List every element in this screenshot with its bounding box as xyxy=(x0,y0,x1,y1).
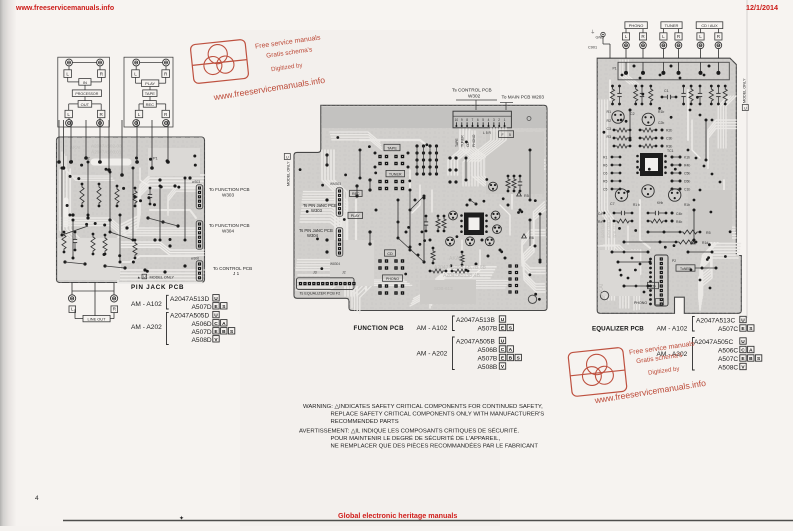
svg-text:SDB-615: SDB-615 xyxy=(613,223,617,238)
svg-text:L: L xyxy=(66,72,69,77)
svg-text:A508B: A508B xyxy=(478,364,498,371)
svg-text:J2: J2 xyxy=(342,271,346,275)
svg-text:PHONO: PHONO xyxy=(472,134,476,147)
svg-text:7: 7 xyxy=(472,118,474,122)
svg-text:C5b: C5b xyxy=(684,172,690,176)
svg-text:PLAY: PLAY xyxy=(145,81,155,86)
svg-text:A507D: A507D xyxy=(192,304,212,311)
svg-text:MODEL ONLY: MODEL ONLY xyxy=(743,78,747,103)
svg-text:OUT: OUT xyxy=(81,102,90,107)
svg-text:PHONO: PHONO xyxy=(386,277,399,281)
svg-text:U: U xyxy=(501,317,505,323)
svg-text:P2: P2 xyxy=(672,259,676,263)
svg-text:TUNER: TUNER xyxy=(665,23,679,28)
svg-text:R1 b: R1 b xyxy=(633,203,640,207)
svg-text:A2047A505C: A2047A505C xyxy=(694,339,733,346)
svg-text:R3b: R3b xyxy=(666,145,672,149)
svg-text:A2047A505D: A2047A505D xyxy=(170,313,209,320)
svg-text:⏚: ⏚ xyxy=(591,29,596,35)
svg-text:U: U xyxy=(741,318,745,324)
svg-text:WM303: WM303 xyxy=(330,182,341,186)
svg-text:10: 10 xyxy=(455,118,459,122)
svg-text:1: 1 xyxy=(504,118,506,122)
svg-text:C: C xyxy=(214,321,218,327)
svg-text:Ts CONTROL PCB: Ts CONTROL PCB xyxy=(452,88,492,93)
svg-text:POUR MAINTENIR LE DEGRÉ DE SÉC: POUR MAINTENIR LE DEGRÉ DE SÉCURITÉ DE L… xyxy=(331,435,501,442)
svg-text:▲: ▲ xyxy=(137,276,141,280)
svg-text:CD: CD xyxy=(387,251,393,256)
svg-text:U: U xyxy=(501,339,505,345)
svg-text:P1: P1 xyxy=(153,157,158,161)
svg-text:A: A xyxy=(222,321,226,327)
svg-text:Ts EQUALIZER PCB F2: Ts EQUALIZER PCB F2 xyxy=(300,292,341,296)
svg-text:9: 9 xyxy=(461,118,463,122)
svg-text:R2b: R2b xyxy=(666,129,672,133)
svg-text:R1: R1 xyxy=(607,110,612,114)
svg-text:A508D: A508D xyxy=(192,337,212,344)
svg-text:B: B xyxy=(222,329,226,335)
svg-text:RECOMMENDED PARTS: RECOMMENDED PARTS xyxy=(331,419,399,425)
svg-text:B: B xyxy=(509,356,513,362)
svg-text:To FUNCTION PCB: To FUNCTION PCB xyxy=(209,187,250,192)
svg-text:U: U xyxy=(286,155,289,159)
svg-text:R5: R5 xyxy=(603,180,607,184)
svg-text:U: U xyxy=(741,339,745,345)
svg-text:Global electronic heritage man: Global electronic heritage manuals xyxy=(338,511,457,520)
svg-text:A507D: A507D xyxy=(192,329,212,336)
svg-text:L: L xyxy=(662,34,665,39)
svg-text:TUNER: TUNER xyxy=(389,172,402,176)
svg-text:P1: P1 xyxy=(613,67,617,71)
svg-text:PHONO: PHONO xyxy=(634,301,647,305)
svg-text:C3: C3 xyxy=(607,127,612,131)
svg-text:A2047A505B: A2047A505B xyxy=(456,339,495,346)
svg-text:w303: w303 xyxy=(192,180,200,184)
svg-text:R4b: R4b xyxy=(676,220,682,224)
svg-text:A506B: A506B xyxy=(478,347,498,354)
svg-text:C4b: C4b xyxy=(676,212,682,216)
svg-text:A507C: A507C xyxy=(718,356,738,363)
svg-text:U: U xyxy=(744,106,747,110)
svg-text:FUNCTION PCB: FUNCTION PCB xyxy=(354,325,405,332)
svg-text:MODEL ONLY: MODEL ONLY xyxy=(287,161,291,186)
svg-text:J 1: J 1 xyxy=(233,271,240,276)
svg-text:AM - A102: AM - A102 xyxy=(417,325,448,332)
svg-text:A: A xyxy=(509,347,513,353)
svg-text:6: 6 xyxy=(477,118,479,122)
svg-text:C7: C7 xyxy=(610,202,615,206)
svg-text:To FUNCTION PCB: To FUNCTION PCB xyxy=(209,223,250,228)
svg-text:R1: R1 xyxy=(603,156,607,160)
svg-text:A: A xyxy=(749,348,753,354)
svg-text:AM - A202: AM - A202 xyxy=(131,324,162,331)
svg-text:R1b: R1b xyxy=(684,203,690,207)
svg-text:R1d: R1d xyxy=(702,241,708,245)
svg-text:CD / AUX: CD / AUX xyxy=(701,24,718,28)
svg-text:AKAI: AKAI xyxy=(599,284,605,296)
svg-text:A2047A513C,4C: A2047A513C,4C xyxy=(607,211,611,238)
svg-text:12/1/2014: 12/1/2014 xyxy=(746,3,778,12)
svg-text:L: L xyxy=(67,112,70,117)
svg-text:A506C: A506C xyxy=(718,348,738,355)
svg-text:L 5 R: L 5 R xyxy=(483,131,492,135)
svg-text:F: F xyxy=(502,133,504,137)
svg-text:A506D: A506D xyxy=(192,321,212,328)
svg-text:LINE OUT: LINE OUT xyxy=(88,316,107,321)
svg-text:W302: W302 xyxy=(468,93,481,98)
svg-text:www.freeservicemanuals.info: www.freeservicemanuals.info xyxy=(15,5,114,12)
svg-text:4: 4 xyxy=(488,118,490,122)
svg-text:R1b: R1b xyxy=(658,110,664,114)
svg-text:R6: R6 xyxy=(603,164,607,168)
svg-text:U: U xyxy=(214,313,218,319)
svg-text:AKAI: AKAI xyxy=(70,145,80,150)
svg-text:A2047A513C: A2047A513C xyxy=(696,318,735,325)
svg-text:AM - A102: AM - A102 xyxy=(657,326,688,333)
svg-text:L: L xyxy=(625,34,628,39)
svg-text:B: B xyxy=(749,356,753,362)
svg-text:w306: w306 xyxy=(191,257,199,261)
svg-text:C: C xyxy=(501,347,505,353)
svg-text:A2047A505C-8C: A2047A505C-8C xyxy=(601,210,605,238)
svg-text:PLAY: PLAY xyxy=(351,214,361,218)
svg-text:AVERTISSEMENT: △IL INDIQUE LES: AVERTISSEMENT: △IL INDIQUE LES COMPOSANT… xyxy=(299,428,519,435)
svg-text:2: 2 xyxy=(498,118,500,122)
svg-text:A507B: A507B xyxy=(478,356,498,363)
svg-text:C2: C2 xyxy=(630,112,635,116)
svg-text:4: 4 xyxy=(35,495,39,502)
svg-text:W303: W303 xyxy=(222,193,234,198)
svg-text:L: L xyxy=(134,72,137,77)
svg-text:R5: R5 xyxy=(706,231,711,235)
svg-text:TUNER: TUNER xyxy=(461,135,465,147)
svg-text:A2047A502-03: A2047A502-03 xyxy=(91,144,122,149)
svg-text:A507C: A507C xyxy=(718,326,738,333)
svg-text:PIN JACK PCB: PIN JACK PCB xyxy=(131,284,184,291)
svg-text:C1b: C1b xyxy=(684,188,690,192)
svg-text:K1b: K1b xyxy=(684,156,690,160)
svg-text:C5: C5 xyxy=(603,188,607,192)
svg-text:U: U xyxy=(214,296,218,302)
svg-text:TAPE: TAPE xyxy=(387,145,397,150)
svg-text:AKAI: AKAI xyxy=(449,256,461,262)
svg-text:L: L xyxy=(71,307,74,312)
svg-text:REC: REC xyxy=(146,102,155,107)
svg-text:L: L xyxy=(699,34,702,39)
svg-text:8: 8 xyxy=(466,118,468,122)
svg-text:PROCESSOR: PROCESSOR xyxy=(75,92,98,96)
svg-text:C901: C901 xyxy=(588,46,597,50)
svg-text:W304: W304 xyxy=(307,233,319,238)
svg-text:C3b: C3b xyxy=(666,137,672,141)
svg-text:C6: C6 xyxy=(603,172,607,176)
svg-text:W8304: W8304 xyxy=(330,262,340,266)
svg-text:CD: CD xyxy=(650,284,656,288)
svg-text:TAPE: TAPE xyxy=(455,138,459,147)
svg-text:A2047A500,01: A2047A500,01 xyxy=(91,150,122,155)
svg-text:3: 3 xyxy=(493,118,495,122)
svg-text:To MAIN PCB W203: To MAIN PCB W203 xyxy=(502,95,545,100)
svg-text:5: 5 xyxy=(509,133,511,137)
svg-text:IN: IN xyxy=(83,80,87,85)
svg-text:C2b: C2b xyxy=(658,121,664,125)
svg-text:D5b: D5b xyxy=(684,180,690,184)
svg-text:KHb: KHb xyxy=(657,201,663,205)
svg-text:5: 5 xyxy=(482,118,484,122)
svg-text:A2047A505B,6B,7B,8B: A2047A505B,6B,7B,8B xyxy=(434,265,487,271)
svg-text:A2047A513B,4B: A2047A513B,4B xyxy=(443,273,481,279)
svg-text:NE REMPLACER QUE DES PIÈCES RE: NE REMPLACER QUE DES PIÈCES RECOMMANDÉES… xyxy=(331,443,539,450)
svg-text:R5: R5 xyxy=(524,194,529,198)
svg-text:R3: R3 xyxy=(607,135,612,139)
svg-text:C1: C1 xyxy=(664,89,669,93)
svg-text:REPLACE SAFETY CRITICAL COMPON: REPLACE SAFETY CRITICAL COMPONENTS ONLY … xyxy=(331,412,545,418)
svg-text:WARNING: △INDICATES SAFETY CRI: WARNING: △INDICATES SAFETY CRITICAL COMP… xyxy=(303,404,543,410)
svg-text:L: L xyxy=(138,112,141,117)
svg-text:W303: W303 xyxy=(311,208,323,213)
svg-text:TAPE: TAPE xyxy=(145,91,155,96)
svg-text:R2: R2 xyxy=(607,119,612,123)
svg-text:A508C: A508C xyxy=(718,365,738,372)
svg-text:A2047A513D: A2047A513D xyxy=(170,296,209,303)
svg-text:W304: W304 xyxy=(222,229,234,234)
svg-text:AM - A202: AM - A202 xyxy=(417,351,448,358)
svg-text:SDB-613: SDB-613 xyxy=(434,286,453,291)
svg-text:J3: J3 xyxy=(313,271,317,275)
svg-text:TC1: TC1 xyxy=(667,149,674,153)
svg-text:MODEL ONLY: MODEL ONLY xyxy=(150,276,175,280)
svg-text:C: C xyxy=(741,348,745,354)
svg-text:R4b: R4b xyxy=(684,164,690,168)
svg-text:EQUALIZER PCB: EQUALIZER PCB xyxy=(592,326,644,333)
svg-text:A2047A513B: A2047A513B xyxy=(456,317,495,324)
svg-text:PHONO: PHONO xyxy=(629,23,644,28)
svg-text:A507B: A507B xyxy=(478,326,498,333)
svg-text:AM - A102: AM - A102 xyxy=(131,301,162,308)
